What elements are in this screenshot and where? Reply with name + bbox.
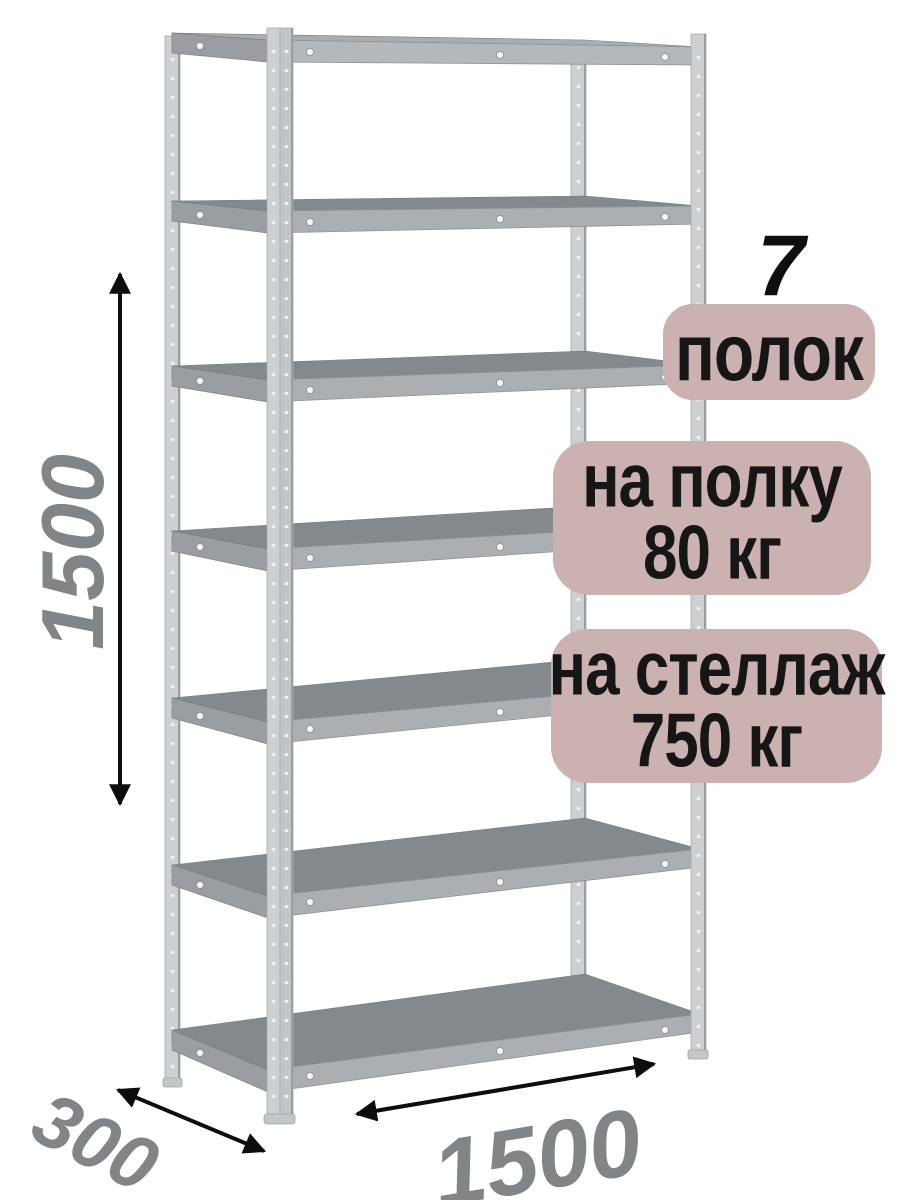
shelf-count-badge: полок	[663, 304, 875, 400]
shelf-count-number: 7	[757, 223, 805, 309]
shelf-2	[172, 196, 700, 233]
shelf-count-label: полок	[675, 305, 863, 398]
shelf-6	[172, 818, 700, 918]
shelf-1	[172, 33, 700, 65]
product-image: 1500 300 1500 7 полок на полку 80 кг на …	[0, 0, 900, 1200]
per-rack-load-badge: на стеллаж 750 кг	[551, 629, 882, 783]
shelf-3	[172, 351, 700, 402]
height-dimension-label: 1500	[29, 454, 117, 650]
per-shelf-load-badge: на полку 80 кг	[553, 441, 871, 595]
per-rack-load-line2: 750 кг	[631, 698, 803, 786]
rack-post-front-left	[264, 28, 295, 1124]
rack-illustration	[0, 0, 900, 1200]
per-shelf-load-line2: 80 кг	[643, 510, 781, 598]
rack-post-back-left	[163, 36, 182, 1087]
shelf-7	[172, 974, 700, 1092]
